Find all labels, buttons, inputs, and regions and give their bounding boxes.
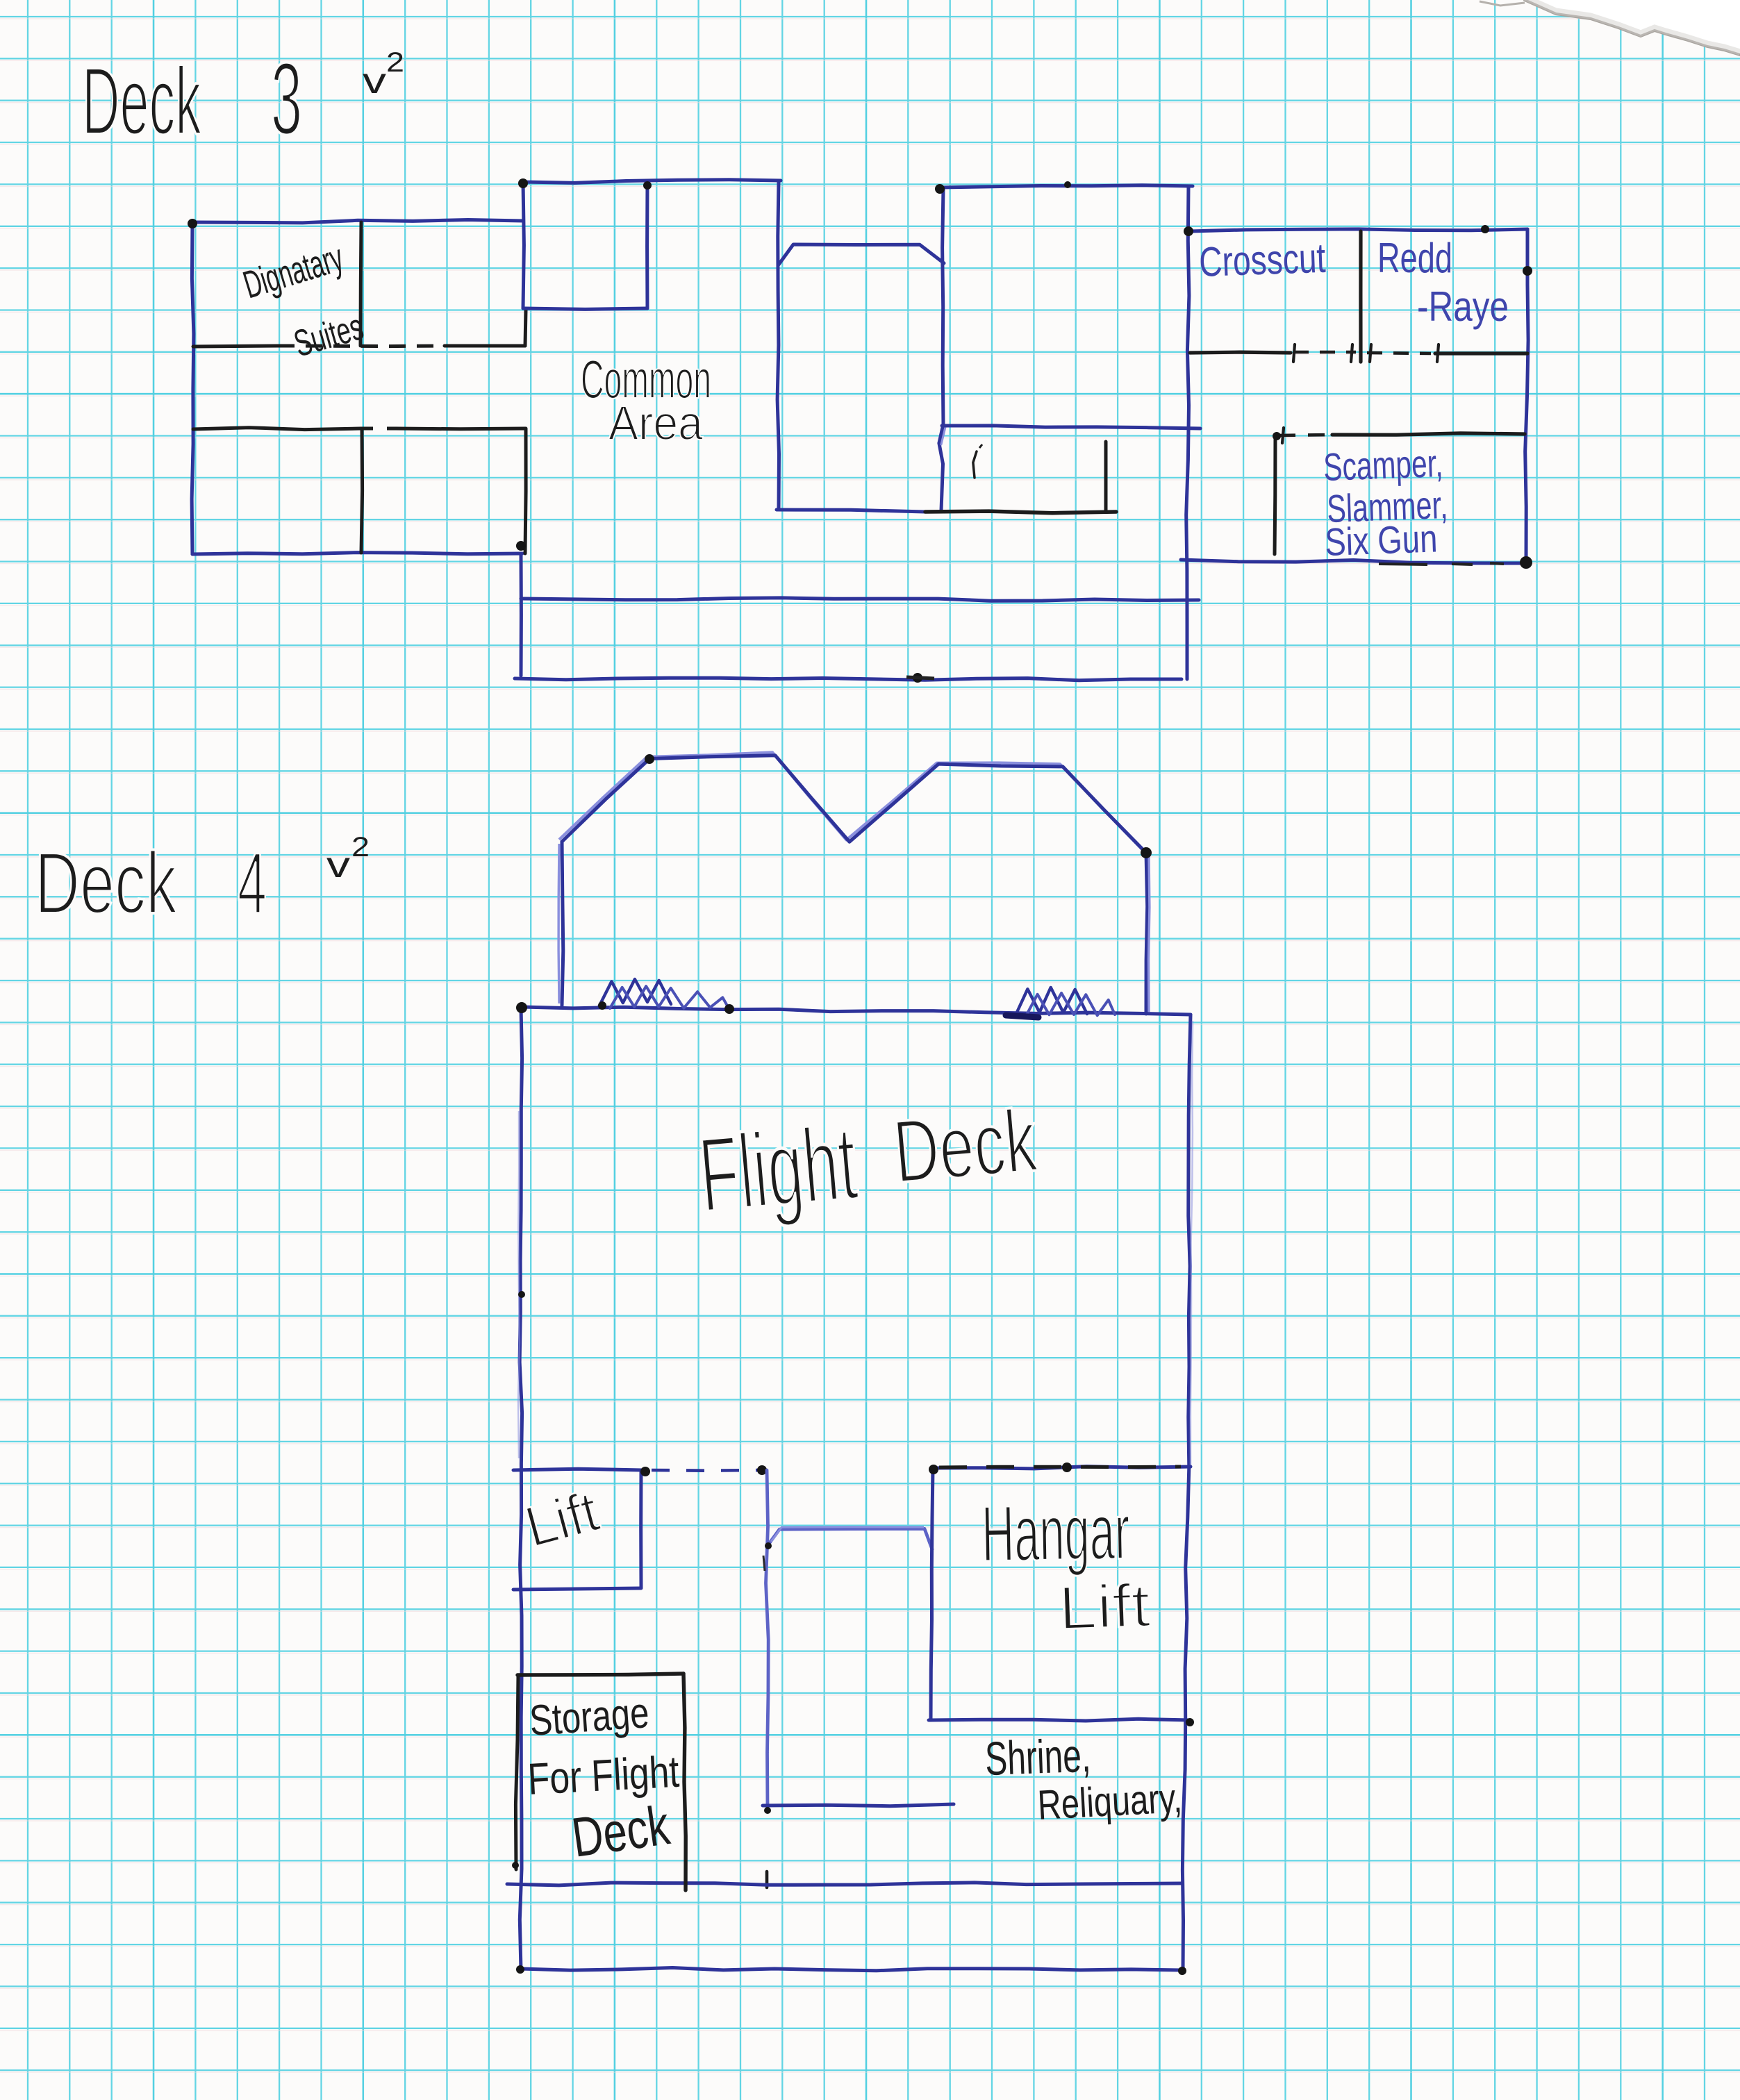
svg-text:Lift: Lift [1057,1570,1151,1642]
svg-text:Deck: Deck [82,48,202,155]
svg-text:4: 4 [238,834,267,932]
svg-text:Area: Area [608,396,703,450]
svg-text:v: v [363,61,386,101]
svg-text:-Raye: -Raye [1417,283,1509,330]
svg-text:Six Gun: Six Gun [1324,516,1438,564]
svg-text:2: 2 [351,832,370,862]
svg-text:Flight: Flight [695,1103,861,1235]
svg-text:Storage: Storage [528,1689,650,1745]
svg-text:Crosscut: Crosscut [1198,235,1326,285]
svg-text:Deck: Deck [890,1091,1041,1202]
svg-text:2: 2 [386,47,404,78]
svg-text:3: 3 [271,42,302,156]
svg-text:Reliquary,: Reliquary, [1036,1774,1183,1828]
svg-text:Shrine,: Shrine, [984,1729,1092,1785]
svg-text:Scamper,: Scamper, [1323,441,1443,489]
svg-text:Redd: Redd [1377,235,1452,281]
svg-text:Deck: Deck [35,834,178,932]
svg-text:Hangar: Hangar [981,1487,1130,1578]
svg-text:v: v [326,845,350,885]
